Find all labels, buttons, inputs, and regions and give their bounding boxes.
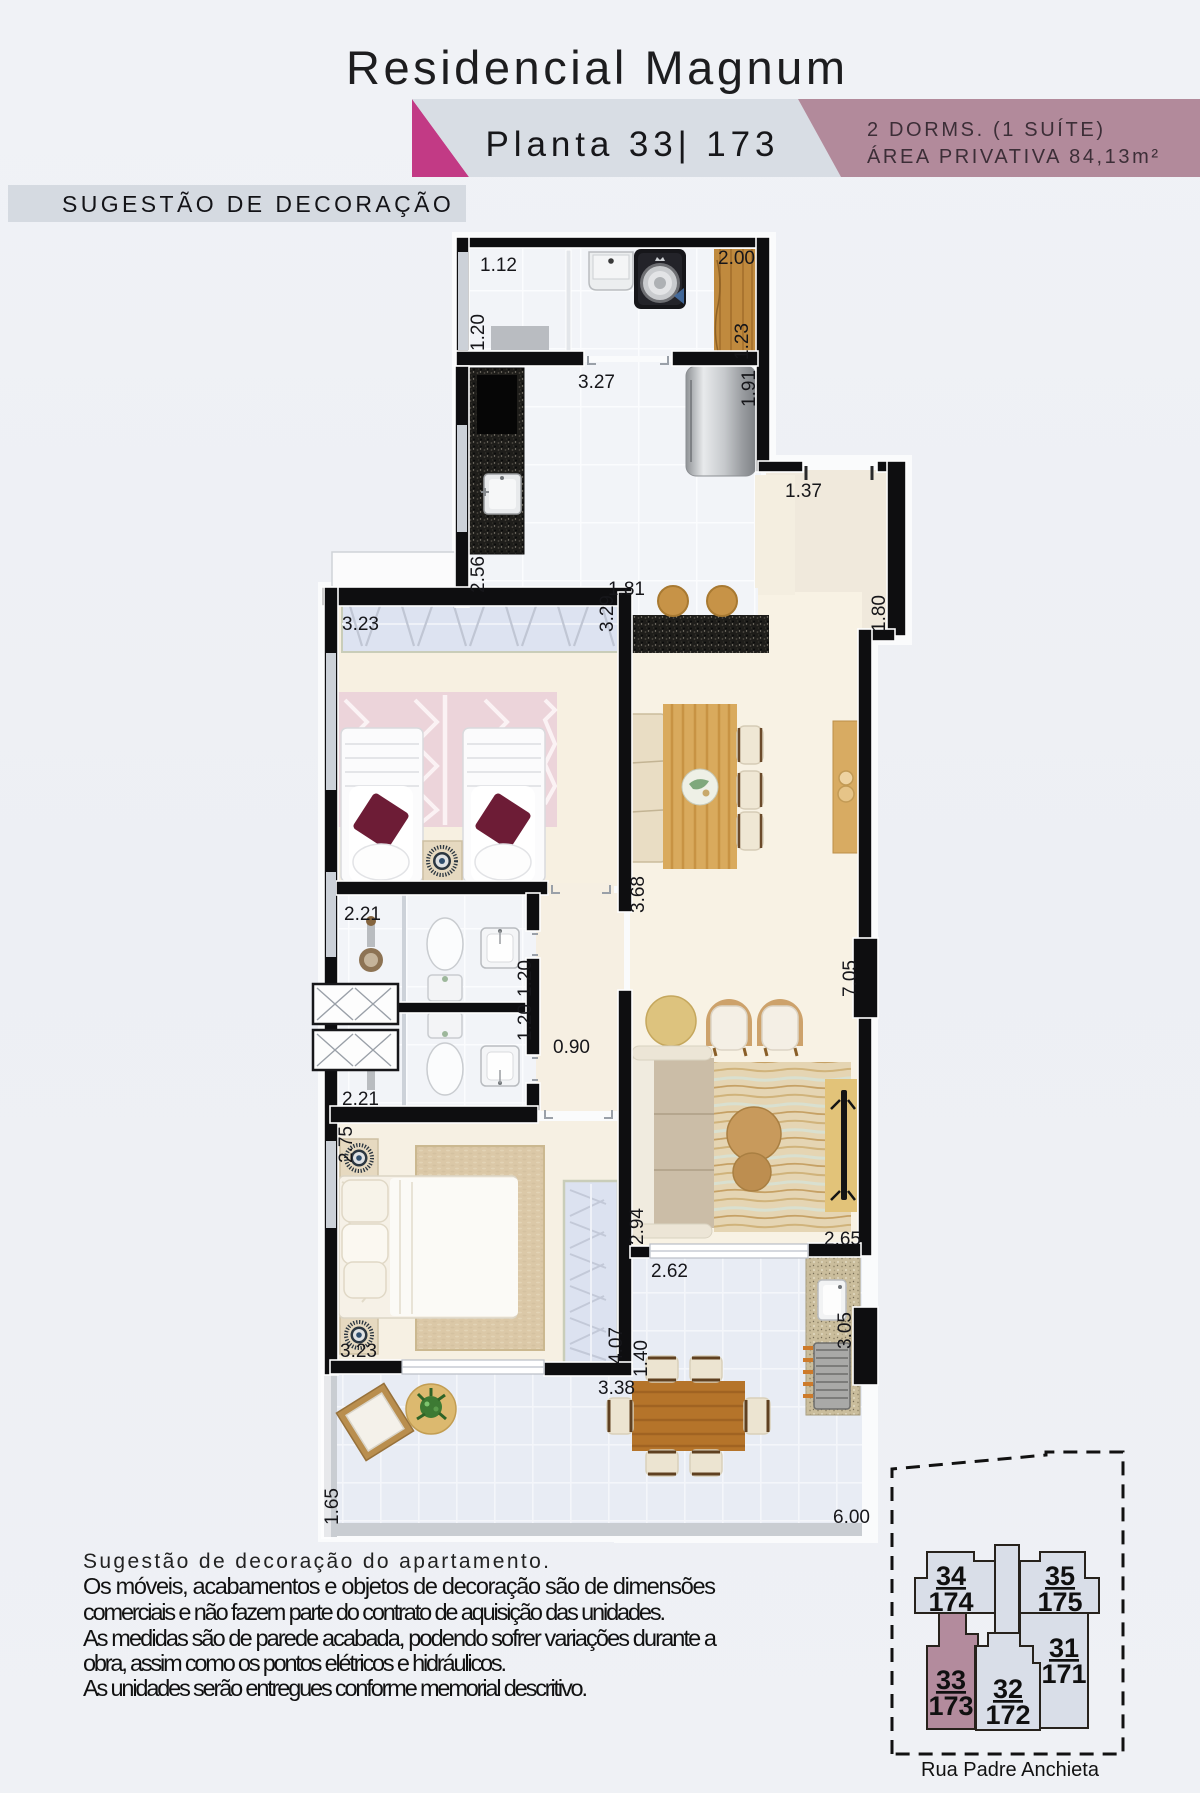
svg-text:ÁREA PRIVATIVA 84,13m²: ÁREA PRIVATIVA 84,13m²	[867, 145, 1160, 168]
svg-text:1.40: 1.40	[631, 1340, 652, 1377]
svg-text:Planta 33| 173: Planta 33| 173	[486, 125, 779, 164]
svg-text:2.75: 2.75	[336, 1126, 357, 1163]
svg-text:2.21: 2.21	[344, 904, 381, 925]
svg-text:6.00: 6.00	[833, 1507, 870, 1528]
svg-text:173: 173	[928, 1691, 973, 1721]
svg-text:4.07: 4.07	[606, 1327, 627, 1364]
svg-text:172: 172	[985, 1700, 1030, 1730]
svg-text:1.20: 1.20	[515, 1004, 536, 1041]
svg-text:2.56: 2.56	[468, 556, 489, 593]
svg-text:1.20: 1.20	[515, 960, 536, 997]
svg-text:1.12: 1.12	[480, 255, 517, 276]
svg-text:1.20: 1.20	[468, 314, 489, 351]
svg-text:3.27: 3.27	[578, 372, 615, 393]
svg-text:175: 175	[1037, 1587, 1082, 1617]
svg-text:3.29: 3.29	[597, 595, 618, 632]
svg-text:Residencial Magnum: Residencial Magnum	[346, 41, 848, 94]
svg-text:obra, assim como os pontos elé: obra, assim como os pontos elétricos e h…	[83, 1650, 507, 1676]
svg-text:1.65: 1.65	[322, 1488, 343, 1525]
svg-text:2.00: 2.00	[718, 248, 755, 269]
svg-text:2.62: 2.62	[651, 1261, 688, 1282]
svg-text:3.68: 3.68	[628, 876, 649, 913]
svg-text:2 DORMS. (1 SUÍTE): 2 DORMS. (1 SUÍTE)	[867, 118, 1105, 141]
svg-text:1.91: 1.91	[739, 370, 760, 407]
svg-text:As unidades serão entregues co: As unidades serão entregues conforme mem…	[83, 1675, 588, 1701]
svg-text:1.37: 1.37	[785, 481, 822, 502]
svg-text:comerciais e não fazem parte d: comerciais e não fazem parte do contrato…	[83, 1599, 666, 1625]
svg-text:2.21: 2.21	[342, 1089, 379, 1110]
svg-text:2.65: 2.65	[824, 1229, 861, 1250]
svg-text:3.38: 3.38	[598, 1378, 635, 1399]
svg-text:1.23: 1.23	[732, 323, 753, 360]
svg-text:1.80: 1.80	[869, 595, 890, 632]
svg-text:Sugestão de decoração do apart: Sugestão de decoração do apartamento.	[83, 1550, 552, 1573]
svg-text:As medidas são de parede acaba: As medidas são de parede acabada, podend…	[83, 1625, 718, 1651]
svg-text:Os móveis, acabamentos e objet: Os móveis, acabamentos e objetos de deco…	[83, 1573, 716, 1599]
svg-text:171: 171	[1041, 1659, 1086, 1689]
svg-text:3.05: 3.05	[835, 1312, 856, 1349]
svg-text:Rua Padre Anchieta: Rua Padre Anchieta	[921, 1759, 1100, 1781]
svg-text:0.90: 0.90	[553, 1037, 590, 1058]
svg-text:174: 174	[928, 1587, 973, 1617]
svg-text:2.94: 2.94	[627, 1208, 648, 1245]
svg-text:3.23: 3.23	[342, 614, 379, 635]
svg-text:3.23: 3.23	[340, 1341, 377, 1362]
svg-text:SUGESTÃO DE DECORAÇÃO: SUGESTÃO DE DECORAÇÃO	[62, 191, 454, 217]
svg-text:7.05: 7.05	[840, 960, 861, 997]
